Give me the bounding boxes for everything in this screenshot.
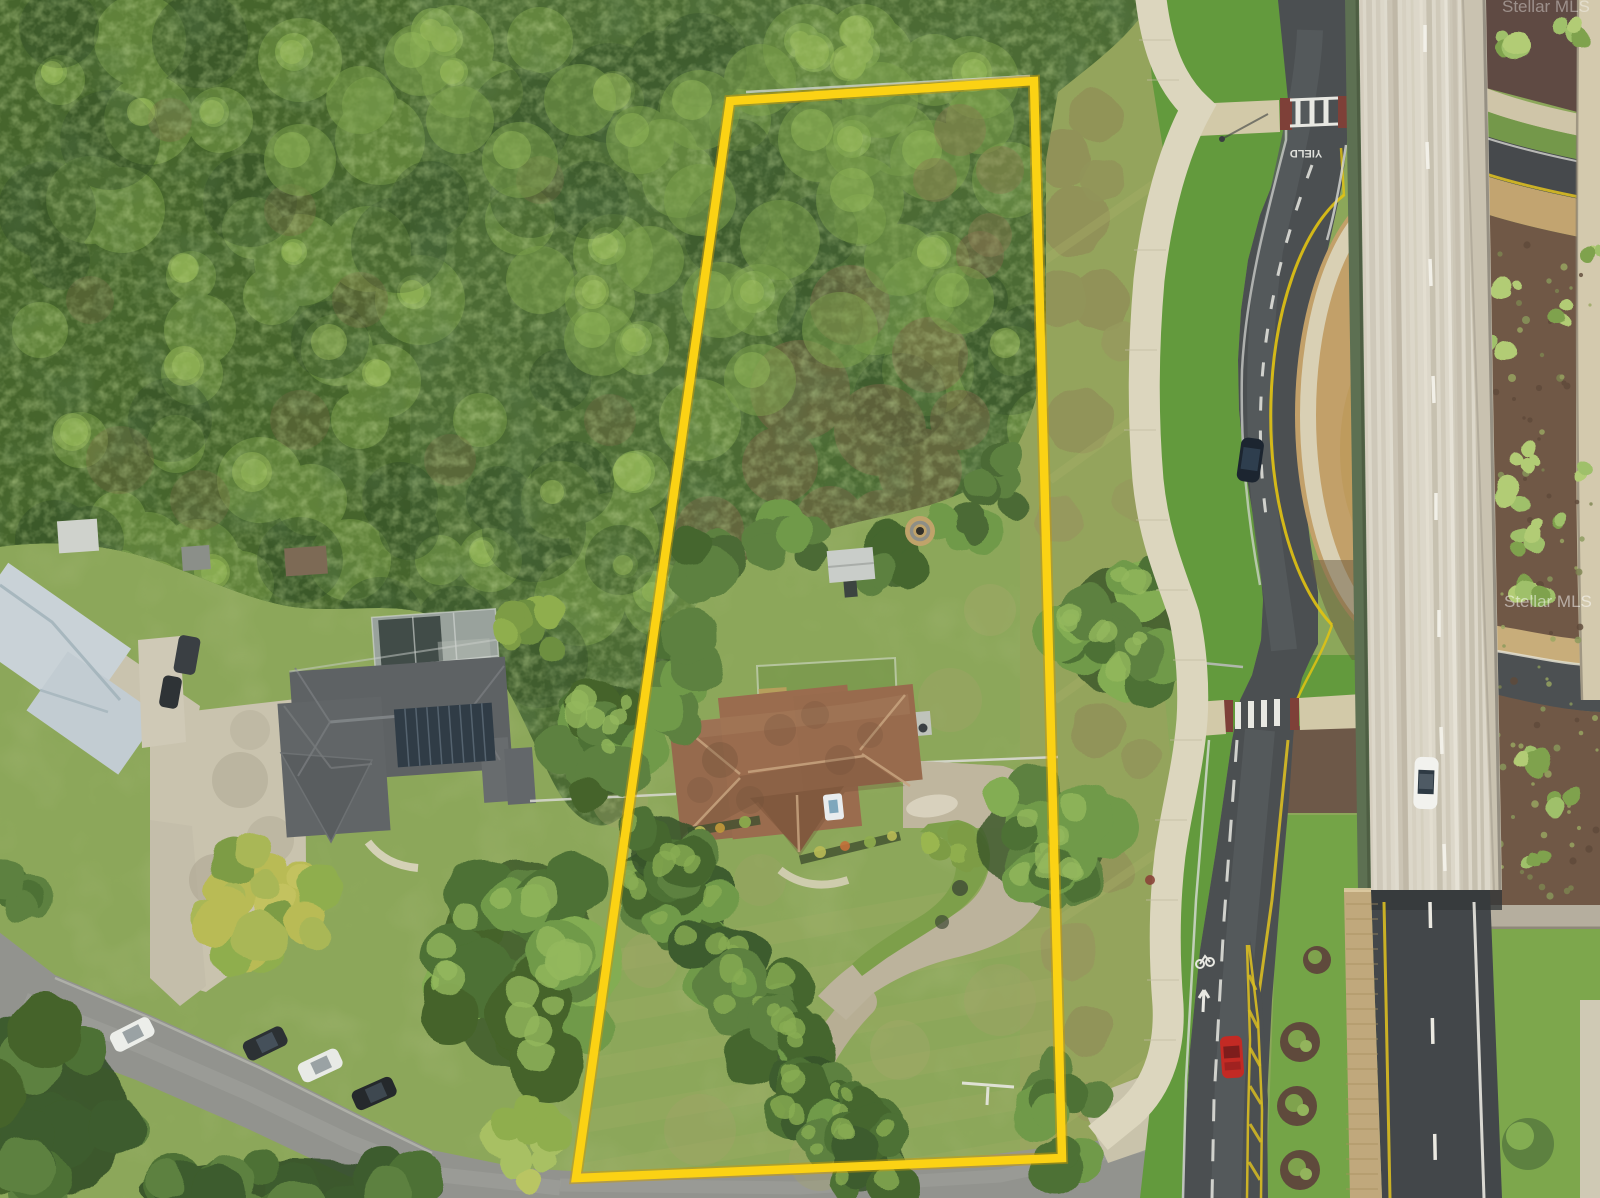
svg-text:Stellar MLS: Stellar MLS bbox=[1504, 592, 1592, 611]
svg-text:Stellar MLS: Stellar MLS bbox=[1502, 0, 1590, 16]
svg-text:YIELD: YIELD bbox=[1290, 147, 1322, 159]
